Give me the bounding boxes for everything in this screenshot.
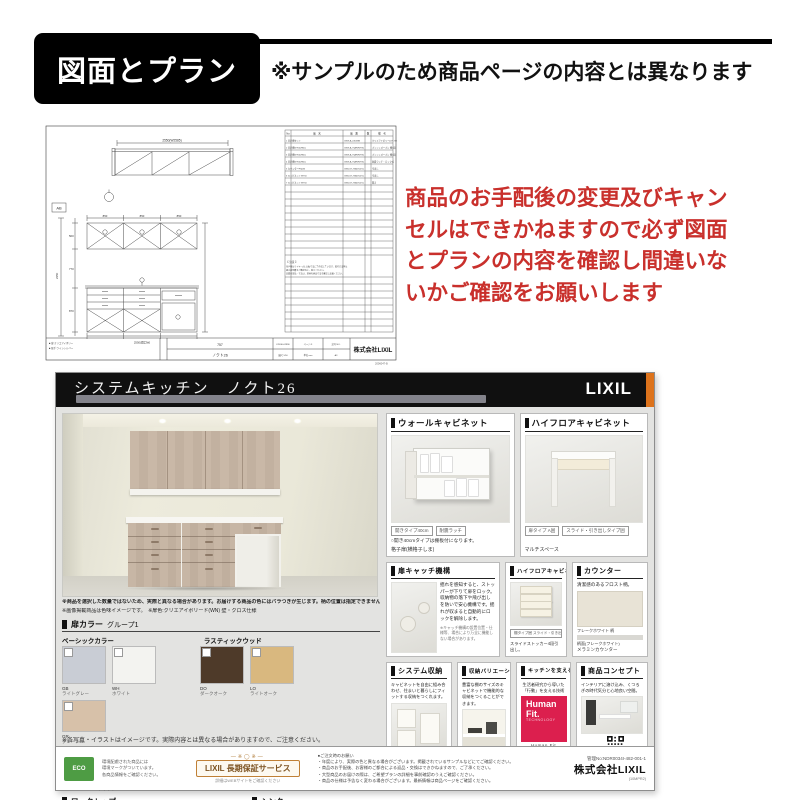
- spotlight: [293, 418, 302, 424]
- worktop-header: ワークトップ: [62, 796, 212, 800]
- eco-note: 環境配慮された商品には 環境マークがついています。 各商品情報をご確認ください。: [102, 759, 174, 778]
- render-note: ※画像掲載商品は色味イメージです。 ※扉色:クリエアイボリード(WN) 壁・クロ…: [62, 608, 380, 615]
- elevation-view: [58, 215, 208, 339]
- panel-footnote: マルチスペース: [525, 546, 644, 553]
- row-note: プッシュオープン 棚1段: [372, 145, 396, 149]
- category-label: ラスティックウッド: [204, 635, 262, 645]
- row-code: GKB-ST-75A6T(2%): [344, 181, 364, 184]
- alcove-drawer: [235, 523, 281, 534]
- tb-cell: 縮尺 1/50: [278, 353, 288, 357]
- note-line: 組立説明書をご確認の上、施工ください。: [286, 268, 325, 272]
- section-bar: [62, 797, 67, 800]
- spotlight: [223, 418, 232, 424]
- row-name: 3 吊戸棚W750(H50): [286, 152, 306, 156]
- panel-bar: [391, 666, 395, 676]
- spec-chip[interactable]: スライド・引き出しタイプ囲: [562, 526, 629, 536]
- counter-swatch-label: フレークホワイト 柄: [577, 628, 643, 634]
- drawing-company: 株式会社LIXIL: [354, 346, 393, 354]
- company-subtext: (10MPR2): [574, 777, 646, 781]
- eco-badge: ECO: [64, 757, 94, 781]
- swatch-checkbox[interactable]: [64, 702, 73, 711]
- concept-photo: [581, 696, 643, 733]
- note-line: 記載の部品・寸法は、現地の納品寸法を確認し設置ください。: [286, 272, 344, 276]
- panel-description: インテリアに溶け込み、くつろぎの時代気分と心地良い空間。: [581, 682, 643, 695]
- panel-footnote: ※キャッチ機構の設置位置・仕様等、場合により万全に機能しない場合があります。: [440, 626, 495, 642]
- panel-caption: スライドストッカー4段引出し。: [510, 641, 562, 653]
- right-column: ウォールキャビネット 開きタイ: [386, 413, 648, 740]
- note-title: 【 注意 】: [286, 260, 298, 264]
- drawer-stack-photo: [510, 582, 562, 626]
- render-wall-cabinet-base: [130, 489, 280, 495]
- corner-note: 2006047-B: [375, 362, 388, 366]
- dim-label: 770: [69, 267, 74, 271]
- table-header: 品 名: [313, 132, 321, 136]
- panel-description: 清潔感のあるフロスト柄。: [577, 582, 643, 589]
- render-ceiling: [63, 414, 377, 427]
- tb-cell: ページ-3: [304, 343, 313, 346]
- panel-highfloor-drawers: ハイフロアキャビネット 棚タイプ囲 スライド・引き出し囲 スライドストッカー4段…: [505, 562, 567, 657]
- swatch-name: ホワイト: [112, 691, 156, 697]
- sheet-footer: ECO 環境配慮された商品には 環境マークがついています。 各商品情報をご確認く…: [56, 746, 654, 790]
- row-name: 5 カウンターFS(W): [286, 166, 305, 170]
- panel-bar: [462, 666, 466, 676]
- panel-title: ウォールキャビネット: [398, 417, 488, 429]
- sink-label: シンク: [261, 796, 284, 800]
- panel-description: キャビネットを自由に組み合わせ、住まいと暮らしにフィットする収納をつくれます。: [391, 682, 447, 701]
- footer-fine-print: ●ご注文時のお願い ・年度により、実際の色と異なる場合がございます。掲載されてい…: [318, 753, 566, 784]
- row-note: プッシュオープン 棚1段: [372, 152, 396, 156]
- sample-disclaimer: ※サンプルのため商品ページの内容とは異なります: [271, 56, 752, 86]
- sheet-body: ※商品を選択した数量ではないため、実際と異なる場合があります。お届けする商品の色…: [56, 407, 654, 746]
- desk-alcove: [237, 536, 279, 587]
- door-catch-photo: [391, 582, 437, 653]
- row-note: 開き: [372, 180, 376, 184]
- row-code: GKW-A-75AF(R/TN): [344, 153, 364, 156]
- row-note: クリエアイボリー(LH-755): [372, 138, 397, 142]
- plan-dim-label: 2550(W2585): [162, 139, 181, 143]
- tb-cell: A3: [335, 354, 338, 357]
- panel-title: カウンター: [584, 566, 622, 576]
- swatch-name: ライトグレー: [62, 691, 106, 697]
- warning-line: セルはできかねますので必ず図面: [405, 215, 785, 247]
- warranty-ornament: ―※◯※―: [196, 754, 300, 760]
- kitchen-render: [62, 413, 378, 597]
- row-note: 引出し: [372, 173, 379, 177]
- table-notes: 【 注意 】 吊戸棚はワイヤー(仕上面)寸法にて作成しています。取付方法等は 組…: [286, 260, 347, 276]
- table-header: 備 考: [378, 132, 386, 136]
- row-code: GKW-A-245ZBN: [344, 139, 361, 142]
- worktop-label: ワークトップ: [71, 796, 116, 800]
- warning-text: 商品のお手配後の変更及びキャン セルはできかねますので必ず図面 とプランの内容を…: [405, 183, 785, 309]
- panel-wall-cabinet: ウォールキャビネット 開きタイ: [386, 413, 515, 557]
- sink-header: シンク: [252, 796, 372, 800]
- plan-name: ノクト26: [212, 353, 228, 358]
- tb-cell: 記号 NO.: [332, 342, 341, 346]
- panel-footnote: メラミンカウンター: [577, 647, 643, 653]
- warranty-label: LIXIL 長期保証サービス: [196, 760, 300, 777]
- table-header: No: [286, 132, 290, 136]
- render-base-cabinet: [128, 523, 281, 587]
- spec-chip[interactable]: 耐震ラッチ: [436, 526, 467, 536]
- panel-bar: [510, 566, 514, 576]
- cad-drawing-svg: 2550(W2585) AB: [45, 122, 397, 366]
- panel-bar: [525, 418, 529, 428]
- dim-total-label: 2550(間口W): [134, 341, 150, 345]
- table-header: 数: [367, 132, 370, 136]
- panel-footnote: 格子扉(横格子しま): [391, 546, 510, 553]
- row-code: GKW-A-75AF(R/TN): [344, 160, 364, 163]
- panel-door-catch: 扉キャッチ機構 揺れを感知すると、ストッパーが下りて扉をロック。収納物の落下や飛…: [386, 562, 500, 657]
- panel-highfloor-cabinet: ハイフロアキャビネット 扉タイプ A囲 スライド・引き出しタイプ囲 マルチスペー…: [520, 413, 649, 557]
- ref-box-label: AB: [56, 206, 62, 211]
- row-name: 6 キャビネットW750: [286, 173, 307, 177]
- tb-cell: 単位 mm: [304, 353, 313, 357]
- panel-description: 揺れを感知すると、ストッパーが下りて扉をロック。収納物の落下や飛び出しを防いで安…: [440, 582, 495, 623]
- row-name: 2 吊戸棚W750(H50): [286, 145, 306, 149]
- dim-label: 2350: [55, 272, 59, 279]
- sheet-header: システムキッチン ノクト26 LIXIL: [56, 373, 654, 407]
- dim-label: 850: [103, 214, 108, 218]
- dim-label: 850: [140, 214, 145, 218]
- orange-stripe: [646, 373, 654, 407]
- product-sheet: システムキッチン ノクト26 LIXIL: [55, 372, 655, 791]
- render-note: ※商品を選択した数量ではないため、実際と異なる場合があります。お届けする商品の色…: [62, 599, 380, 606]
- color-swatch[interactable]: DO ダークオーク: [200, 646, 244, 697]
- color-swatch[interactable]: WH ホワイト: [112, 646, 156, 697]
- spec-chip[interactable]: 開きタイプ40cm: [391, 526, 433, 536]
- plan-no: 757: [217, 343, 223, 347]
- row-code: GKB-ST-75A6T(2%): [344, 174, 364, 177]
- spec-chip[interactable]: 扉タイプ A囲: [525, 526, 560, 536]
- door-color-group: グループ1: [107, 620, 138, 630]
- warning-line: いかご確認をお願いします: [405, 278, 785, 310]
- spec-chip[interactable]: 棚タイプ囲 スライド・引き出し囲: [510, 629, 562, 638]
- dim-label: 850: [177, 214, 182, 218]
- door-color-label: 扉カラー: [71, 619, 103, 630]
- panel-caption: ○開き40cmタイプは棚板付になります。: [391, 539, 510, 546]
- spec-line: ■ 扉:クリエアイボリー: [49, 341, 74, 345]
- highfloor-photo: [525, 435, 644, 523]
- drawer-column: [128, 523, 181, 587]
- table-rows: 1 吊戸棚セット GKW-A-245ZBN クリエアイボリー(LH-755) 2…: [286, 138, 397, 184]
- note-line: 吊戸棚はワイヤー(仕上面)寸法にて作成しています。取付方法等は: [286, 265, 347, 269]
- left-column: ※商品を選択した数量ではないため、実際と異なる場合があります。お届けする商品の色…: [62, 413, 380, 740]
- company-name: 株式会社LIXIL: [574, 762, 646, 777]
- render-shadow: [123, 586, 288, 591]
- swatch-checkbox[interactable]: [114, 648, 123, 657]
- panel-bar: [581, 666, 585, 676]
- category-label: ベーシックカラー: [62, 635, 114, 645]
- panel-bar: [521, 666, 525, 676]
- row-note: 耐震ラッチ・ロック式: [372, 159, 395, 163]
- drawer-column: [182, 523, 235, 587]
- dim-label: 870: [69, 309, 74, 313]
- warranty-subtext: 詳細はWEBサイトをご確認ください: [196, 778, 300, 784]
- header-gray-bar: [76, 395, 486, 403]
- row-name: 1 吊戸棚セット: [286, 138, 301, 142]
- table-header: 品 番: [350, 132, 358, 136]
- tb-cell: K2630-02996: [276, 344, 290, 346]
- logo-line: TECHNOLOGY: [526, 719, 567, 723]
- section-bar: [62, 620, 67, 629]
- swatch-checkbox[interactable]: [64, 648, 73, 657]
- eco-line: 各商品情報をご確認ください。: [102, 772, 174, 778]
- row-code: GKB-ST-75A6T(2%): [344, 167, 364, 170]
- warranty-badge: ―※◯※― LIXIL 長期保証サービス 詳細はWEBサイトをご確認ください: [196, 754, 300, 784]
- spotlight: [158, 418, 167, 424]
- panel-title: 扉キャッチ機構: [398, 566, 451, 576]
- row-note: 引出し: [372, 166, 379, 170]
- parts-table: [285, 130, 393, 332]
- spec-line: ■ 取手:ラインシルバー: [49, 346, 74, 350]
- counter-tag: [577, 635, 643, 640]
- warning-line: 商品のお手配後の変更及びキャン: [405, 183, 785, 215]
- panel-bar: [577, 566, 581, 576]
- swatch-checkbox[interactable]: [252, 648, 261, 657]
- panel-title: システム収納: [398, 666, 443, 676]
- warning-line: とプランの内容を確認し間違いな: [405, 246, 785, 278]
- panel-title: ハイフロアキャビネット: [532, 417, 631, 429]
- dim-label: 500: [69, 234, 74, 238]
- lixil-logo: LIXIL: [585, 379, 632, 399]
- render-left-wall: [63, 414, 83, 596]
- wall-cabinet-photo: [391, 435, 510, 523]
- page-title: 図面とプラン: [34, 33, 260, 104]
- swatch-name: ライトオーク: [250, 691, 294, 697]
- door-color-header: 扉カラー グループ1: [62, 619, 380, 632]
- fine-print-line: ・商品の仕様は予告なく変わる場合がございます。最新情報は商品ページをご確認くださ…: [318, 778, 566, 784]
- color-swatch[interactable]: GB ライトグレー: [62, 646, 106, 697]
- panel-bar: [391, 566, 395, 576]
- header-rule: [258, 39, 772, 44]
- panel-title: ハイフロアキャビネット: [517, 567, 567, 575]
- render-wall-cabinet: [130, 431, 280, 489]
- row-name: 7 キャビネットW750: [286, 180, 307, 184]
- counter-swatch: [577, 591, 643, 627]
- panel-description: 生活者研究から導いた「行動」を支える技術: [521, 682, 566, 695]
- swatch-name: ダークオーク: [200, 691, 244, 697]
- panel-title: キッチンを支える技術: [528, 667, 571, 674]
- panel-bar: [391, 418, 395, 428]
- row-code: GKW-A-75AF(R/TN): [344, 146, 364, 149]
- panel-title: 商品コンセプト: [588, 666, 641, 676]
- panel-counter: カウンター 清潔感のあるフロスト柄。 フレークホワイト 柄 柄面(フレークホワイ…: [572, 562, 648, 657]
- company-block: 管理No:NDR0034I-482-001-1 株式会社LIXIL (10MPR…: [574, 756, 646, 781]
- panel-title: 収納バリエーション: [469, 667, 511, 675]
- plan-view: [52, 140, 233, 212]
- swatch-checkbox[interactable]: [202, 648, 211, 657]
- page-title-label: 図面とプラン: [57, 48, 237, 90]
- cad-drawing: 2550(W2585) AB: [45, 122, 397, 366]
- sheet-disclaimer: ※各写真・イラストはイメージです。実際内容とは異なる場合がありますので、ご注意く…: [62, 735, 648, 744]
- section-bar: [252, 797, 257, 800]
- row-name: 4 吊戸棚W750(H50): [286, 159, 306, 163]
- color-swatch[interactable]: LO ライトオーク: [250, 646, 294, 697]
- page: 図面とプラン ※サンプルのため商品ページの内容とは異なります 商品のお手配後の変…: [0, 0, 800, 800]
- panel-description: 豊富な棚のサイズのキャビネットで機能的な収納をつくることができます。: [462, 682, 506, 707]
